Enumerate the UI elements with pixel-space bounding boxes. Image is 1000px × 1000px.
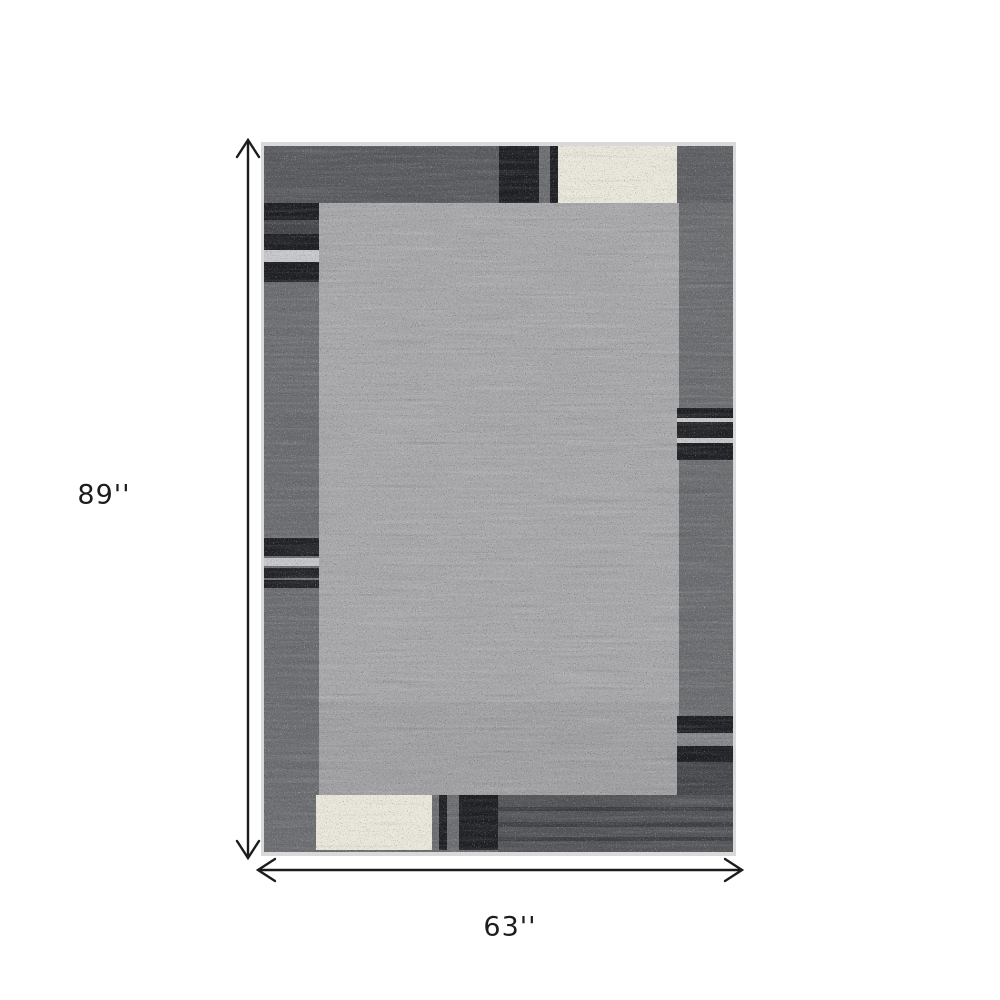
product-dimension-figure: 89'' 63'' (0, 0, 1000, 1000)
rug-graphic (261, 142, 736, 856)
rug-image (261, 142, 736, 856)
rug-texture (264, 146, 733, 852)
height-dimension-label: 89'' (77, 480, 130, 511)
vertical-dimension-arrow (233, 134, 263, 864)
width-dimension-label: 63'' (483, 912, 536, 943)
horizontal-dimension-arrow (252, 855, 748, 885)
